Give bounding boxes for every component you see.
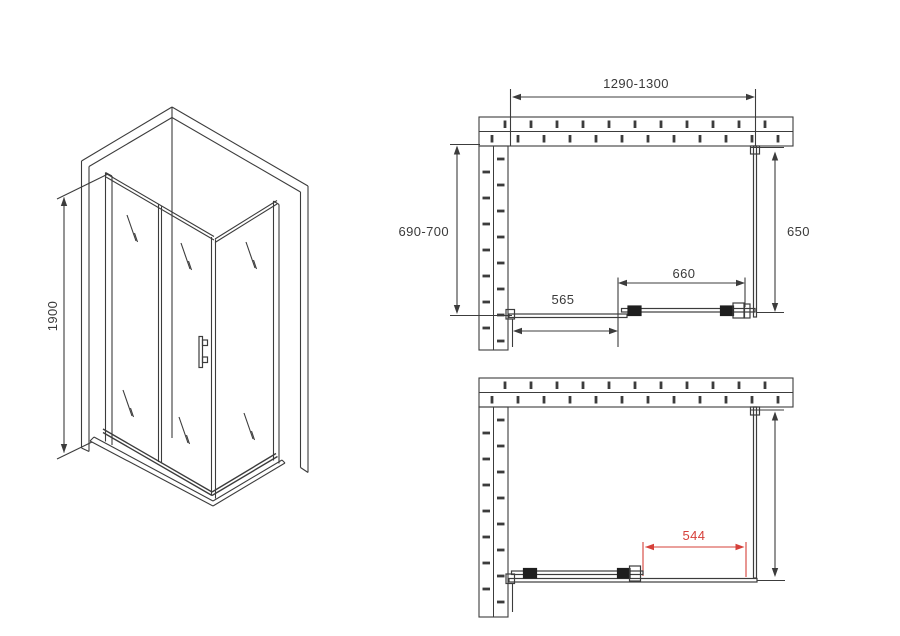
iso-line bbox=[82, 448, 90, 452]
side-panel bbox=[754, 407, 757, 578]
iso-line bbox=[212, 457, 278, 496]
isometric-view: 1900 bbox=[45, 107, 308, 506]
iso-line bbox=[89, 118, 172, 167]
iso-line bbox=[90, 441, 213, 506]
iso-line bbox=[103, 433, 212, 496]
glass-hatch bbox=[179, 417, 188, 443]
dim-arrow bbox=[772, 568, 778, 577]
iso-line bbox=[94, 437, 213, 501]
dim-label-fixed-panel: 565 bbox=[552, 292, 575, 307]
dim-arrow bbox=[736, 280, 745, 286]
dim-label-overall-width: 1290-1300 bbox=[603, 76, 669, 91]
door-roller-right bbox=[721, 306, 734, 316]
iso-line bbox=[215, 201, 277, 240]
iso-line bbox=[172, 118, 301, 193]
dim-arrow bbox=[772, 152, 778, 161]
iso-line bbox=[215, 204, 277, 243]
glass-hatch bbox=[244, 413, 253, 439]
glass-hatch bbox=[123, 390, 132, 416]
dim-arrow bbox=[512, 94, 521, 100]
iso-line bbox=[82, 107, 173, 161]
dim-arrow bbox=[454, 305, 460, 314]
dim-arrow bbox=[513, 328, 522, 334]
iso-line bbox=[301, 468, 309, 473]
iso-line bbox=[106, 177, 214, 240]
shower-enclosure-drawing: 1900 1290-1300 690-700 650 660 565 544 bbox=[0, 0, 900, 636]
dim-arrow bbox=[454, 146, 460, 155]
door-roller-right bbox=[618, 569, 631, 579]
dim-label-side-glass: 650 bbox=[787, 224, 810, 239]
dim-arrow bbox=[645, 544, 654, 550]
dim-arrow bbox=[772, 303, 778, 312]
handle-mount-bottom bbox=[203, 357, 208, 363]
glass-hatch bbox=[127, 215, 136, 241]
handle-mount-top bbox=[203, 340, 208, 346]
side-panel-bracket bbox=[751, 407, 760, 415]
glass-hatch bbox=[181, 243, 190, 269]
dim-label-door-width: 660 bbox=[673, 266, 696, 281]
roller-bracket bbox=[733, 303, 744, 318]
side-panel bbox=[754, 146, 757, 317]
iso-line bbox=[213, 460, 282, 501]
fixed-panel bbox=[509, 314, 627, 318]
dim-arrow bbox=[61, 444, 67, 453]
door-roller-left bbox=[524, 569, 537, 579]
technical-drawing-canvas: 1900 1290-1300 690-700 650 660 565 544 bbox=[0, 0, 900, 636]
glass-hatch bbox=[246, 242, 255, 268]
dim-arrow bbox=[609, 328, 618, 334]
dim-label-side-depth: 690-700 bbox=[398, 224, 449, 239]
plan-view-bottom: 544 bbox=[479, 378, 793, 617]
iso-line bbox=[90, 437, 94, 441]
dim-arrow bbox=[746, 94, 755, 100]
iso-line bbox=[103, 429, 212, 492]
door-roller-left bbox=[628, 306, 641, 316]
iso-line bbox=[282, 460, 285, 463]
dim-arrow bbox=[772, 412, 778, 421]
iso-line bbox=[212, 454, 276, 493]
dim-arrow bbox=[736, 544, 745, 550]
dim-arrow bbox=[618, 280, 627, 286]
dim-arrow bbox=[61, 197, 67, 206]
dim-label-open-passage: 544 bbox=[683, 528, 706, 543]
iso-line bbox=[172, 107, 308, 186]
dim-label-height-1900: 1900 bbox=[45, 301, 60, 332]
iso-line bbox=[106, 174, 214, 237]
plan-view-top: 1290-1300 690-700 650 660 565 bbox=[398, 76, 809, 350]
